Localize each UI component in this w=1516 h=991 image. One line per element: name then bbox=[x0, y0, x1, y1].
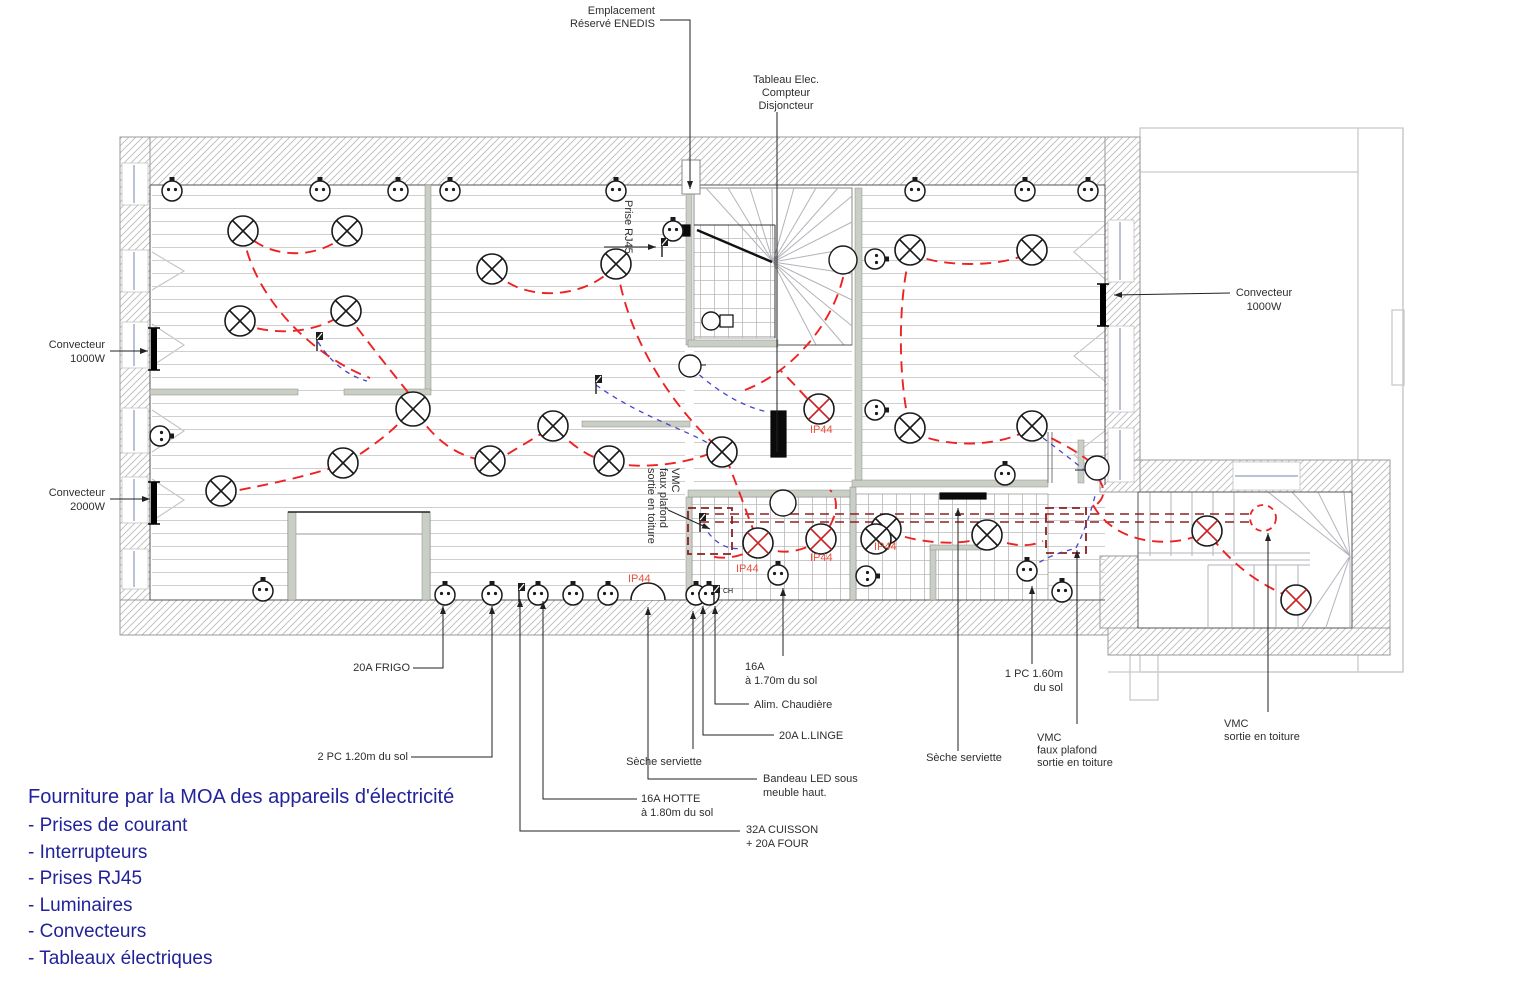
annotation-chaudiere: Alim. Chaudière bbox=[754, 699, 832, 711]
exterior-wall bbox=[120, 600, 1140, 635]
annotation-convecteur-gauche-1000: Convecteur bbox=[49, 339, 106, 351]
legend-title: Fourniture par la MOA des appareils d'él… bbox=[28, 786, 454, 809]
ceiling-light-icon bbox=[206, 476, 236, 506]
annotation-bandeau-led: Bandeau LED sous bbox=[763, 773, 858, 785]
wall-light-icon bbox=[679, 355, 701, 377]
electrical-panel-icon bbox=[940, 493, 986, 499]
annotation-cuisson: + 20A FOUR bbox=[746, 838, 809, 850]
adjacent-structure-outline bbox=[1392, 310, 1404, 385]
ceiling-light-icon bbox=[707, 437, 737, 467]
partition-wall bbox=[425, 185, 431, 390]
annotation-ip44-4: IP44 bbox=[810, 552, 833, 564]
partition-wall bbox=[852, 480, 1048, 487]
fixture bbox=[720, 315, 733, 327]
ceiling-light-icon bbox=[1281, 585, 1311, 615]
legend-item: - Prises RJ45 bbox=[28, 866, 454, 893]
partition-wall bbox=[582, 421, 690, 427]
ceiling-light-icon bbox=[332, 216, 362, 246]
annotation-ip44-2: IP44 bbox=[628, 573, 651, 585]
ceiling-light-icon bbox=[972, 520, 1002, 550]
annotation-vmc-toiture: sortie en toiture bbox=[1224, 731, 1300, 743]
partition-wall bbox=[422, 512, 430, 600]
wall-light-icon bbox=[829, 246, 857, 274]
annotation-16a-170: 16A bbox=[745, 661, 765, 673]
partition-wall bbox=[1078, 440, 1084, 483]
annotation-tableau: Tableau Elec. bbox=[753, 74, 819, 86]
electrical-panel-icon bbox=[771, 411, 786, 457]
ceiling-light-icon bbox=[396, 392, 430, 426]
legend-item: - Luminaires bbox=[28, 893, 454, 920]
annotation-vmc-droit: VMC bbox=[1037, 732, 1062, 744]
annotation-enedis: Emplacement bbox=[588, 5, 655, 17]
partition-wall bbox=[930, 545, 936, 600]
legend-item: - Interrupteurs bbox=[28, 840, 454, 867]
annotation-bandeau-led: meuble haut. bbox=[763, 787, 827, 799]
annotation-seche-serviette-d: Sèche serviette bbox=[926, 752, 1002, 764]
partition-wall bbox=[855, 188, 862, 480]
convector-icon bbox=[151, 328, 157, 370]
room bbox=[288, 512, 430, 600]
annotation-convecteur-gauche-2000: Convecteur bbox=[49, 487, 106, 499]
exterior-wall bbox=[1352, 460, 1390, 655]
ceiling-light-icon bbox=[475, 446, 505, 476]
annotation-prise-rj45: Prise RJ45 bbox=[622, 200, 634, 254]
exterior-wall bbox=[120, 137, 1140, 185]
annotation-seche-serviette-g: Sèche serviette bbox=[626, 756, 702, 768]
annotation-tableau: Compteur bbox=[762, 87, 811, 99]
annotation-linge: 20A L.LINGE bbox=[779, 730, 843, 742]
annotation-vmc-droit: faux plafond bbox=[1037, 745, 1097, 757]
legend-item: - Tableaux électriques bbox=[28, 946, 454, 973]
ceiling-light-icon bbox=[804, 394, 834, 424]
annotation-ip44-3: IP44 bbox=[736, 563, 759, 575]
annotation-tableau: Disjoncteur bbox=[758, 100, 813, 112]
partition-wall bbox=[150, 389, 298, 395]
legend-item: - Convecteurs bbox=[28, 919, 454, 946]
ceiling-light-icon bbox=[225, 306, 255, 336]
wall-light-icon bbox=[1085, 456, 1109, 480]
ceiling-light-icon bbox=[477, 254, 507, 284]
annotation-pc-160: du sol bbox=[1034, 682, 1063, 694]
partition-wall bbox=[850, 487, 856, 600]
ceiling-light-icon bbox=[1017, 411, 1047, 441]
annotation-vmc-droit: sortie en toiture bbox=[1037, 757, 1113, 769]
annotation-vmc-centre-2: faux plafond bbox=[657, 468, 669, 528]
adjacent-structure-outline bbox=[1130, 655, 1158, 700]
annotation-ip44-5: IP44 bbox=[874, 541, 897, 553]
ceiling-light-icon bbox=[895, 235, 925, 265]
enedis-niche bbox=[682, 160, 700, 194]
ceiling-light-icon bbox=[228, 216, 258, 246]
annotation-cuisson: 32A CUISSON bbox=[746, 824, 818, 836]
annotation-pc-120: 2 PC 1.20m du sol bbox=[318, 751, 409, 763]
annotation-convecteur-gauche-2000: 2000W bbox=[70, 501, 105, 513]
legend-item: - Prises de courant bbox=[28, 813, 454, 840]
annotation-ip44-1: IP44 bbox=[810, 424, 833, 436]
annotation-vmc-toiture: VMC bbox=[1224, 718, 1249, 730]
annotation-frigo: 20A FRIGO bbox=[353, 662, 410, 674]
partition-wall bbox=[686, 497, 692, 600]
ceiling-light-icon bbox=[806, 524, 836, 554]
partition-wall bbox=[288, 512, 296, 600]
annotation-hotte: 16A HOTTE bbox=[641, 793, 700, 805]
ceiling-light-icon bbox=[328, 448, 358, 478]
ceiling-light-icon bbox=[1192, 516, 1222, 546]
annotation-vmc-centre-3: sortie en toiture bbox=[645, 468, 657, 544]
wall-light-icon bbox=[702, 312, 720, 330]
ceiling-light-icon bbox=[331, 296, 361, 326]
convector-icon bbox=[151, 482, 157, 524]
annotation-pc-160: 1 PC 1.60m bbox=[1005, 668, 1063, 680]
exterior-wall bbox=[1100, 556, 1138, 628]
partition-wall bbox=[686, 188, 692, 345]
convector-icon bbox=[1100, 284, 1106, 326]
partition-wall bbox=[688, 340, 778, 347]
legend: Fourniture par la MOA des appareils d'él… bbox=[28, 786, 454, 972]
ceiling-light-icon bbox=[743, 528, 773, 558]
annotation-enedis: Réservé ENEDIS bbox=[570, 18, 655, 30]
annotation-convecteur-droit-1000: 1000W bbox=[1247, 301, 1282, 313]
ceiling-light-icon bbox=[1017, 235, 1047, 265]
annotation-16a-170: à 1.70m du sol bbox=[745, 675, 817, 687]
ceiling-light-icon bbox=[538, 411, 568, 441]
wall-light-icon bbox=[770, 490, 796, 516]
exterior-wall bbox=[1108, 628, 1390, 655]
ceiling-light-icon bbox=[895, 413, 925, 443]
switch-label: CH bbox=[723, 588, 733, 595]
annotation-convecteur-droit-1000: Convecteur bbox=[1236, 287, 1293, 299]
annotation-hotte: à 1.80m du sol bbox=[641, 807, 713, 819]
annotation-vmc-centre-1: VMC bbox=[669, 468, 681, 493]
ceiling-light-icon bbox=[594, 446, 624, 476]
annotation-convecteur-gauche-1000: 1000W bbox=[70, 353, 105, 365]
